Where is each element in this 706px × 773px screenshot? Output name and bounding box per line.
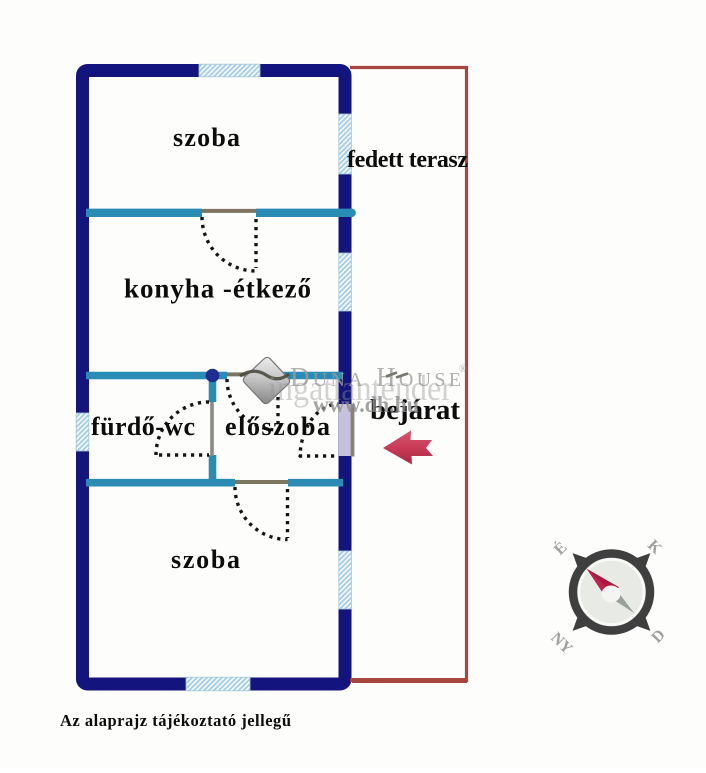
svg-text:www.dh.hu: www.dh.hu [313, 392, 419, 417]
svg-text:szoba: szoba [173, 123, 240, 152]
svg-text:fedett terasz: fedett terasz [347, 147, 468, 173]
svg-text:fürdő-wc: fürdő-wc [91, 412, 195, 441]
svg-text:®: ® [459, 364, 467, 375]
svg-text:Az alaprajz tájékoztató jelleg: Az alaprajz tájékoztató jellegű [60, 711, 291, 730]
svg-text:konyha -étkező: konyha -étkező [124, 274, 311, 304]
